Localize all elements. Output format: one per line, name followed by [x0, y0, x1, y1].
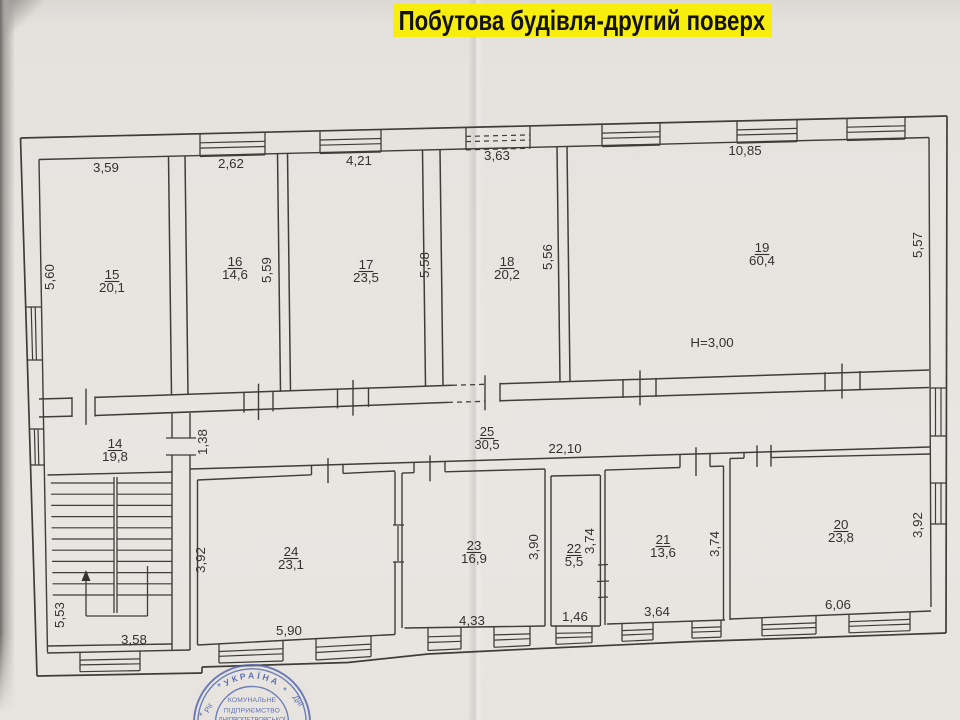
svg-text:ПІДПРИЄМСТВО: ПІДПРИЄМСТВО [224, 708, 280, 715]
svg-text:3,74: 3,74 [707, 531, 722, 557]
svg-text:20,1: 20,1 [99, 280, 125, 295]
svg-text:ДНІПРОПЕТРОВСЬКОЇ: ДНІПРОПЕТРОВСЬКОЇ [218, 717, 286, 720]
svg-text:16,9: 16,9 [461, 551, 487, 566]
svg-text:14,6: 14,6 [222, 267, 248, 282]
svg-text:3,63: 3,63 [484, 148, 510, 163]
svg-text:3,58: 3,58 [121, 632, 147, 647]
svg-text:1,46: 1,46 [562, 609, 588, 624]
svg-text:5,60: 5,60 [42, 264, 57, 290]
svg-text:1,38: 1,38 [195, 429, 210, 455]
svg-text:3,64: 3,64 [644, 604, 670, 619]
svg-text:5,58: 5,58 [417, 252, 432, 278]
svg-text:Н=3,00: Н=3,00 [690, 335, 733, 350]
svg-text:*: * [217, 682, 221, 693]
svg-text:3,59: 3,59 [93, 160, 119, 175]
svg-text:2,62: 2,62 [218, 156, 244, 171]
svg-text:19,8: 19,8 [102, 449, 128, 464]
svg-text:Ріг: Ріг [202, 701, 215, 714]
svg-text:4,33: 4,33 [459, 613, 485, 628]
svg-text:13,6: 13,6 [650, 545, 676, 560]
svg-text:3,90: 3,90 [526, 534, 541, 560]
svg-text:23,1: 23,1 [278, 557, 304, 572]
svg-text:20,2: 20,2 [494, 267, 520, 282]
svg-text:6,06: 6,06 [825, 597, 851, 612]
svg-text:4,21: 4,21 [346, 153, 372, 168]
svg-text:5,59: 5,59 [259, 257, 274, 283]
svg-text:3,92: 3,92 [193, 547, 208, 573]
svg-text:5,57: 5,57 [910, 232, 925, 258]
svg-text:60,4: 60,4 [749, 253, 775, 268]
svg-text:5,56: 5,56 [540, 244, 555, 270]
svg-text:3,92: 3,92 [910, 512, 925, 538]
svg-text:КОМУНАЛЬНЕ: КОМУНАЛЬНЕ [228, 697, 277, 704]
svg-text:10,85: 10,85 [728, 143, 761, 158]
svg-text:30,5: 30,5 [474, 437, 499, 452]
svg-text:3,74: 3,74 [582, 528, 597, 554]
svg-text:23,5: 23,5 [353, 270, 379, 285]
svg-text:5,90: 5,90 [276, 623, 302, 638]
svg-text:22,10: 22,10 [548, 441, 581, 456]
svg-text:5,53: 5,53 [52, 602, 67, 628]
svg-text:*: * [283, 686, 287, 697]
svg-text:5,5: 5,5 [565, 554, 584, 569]
svg-text:*: * [199, 711, 203, 720]
svg-text:23,8: 23,8 [828, 530, 854, 545]
